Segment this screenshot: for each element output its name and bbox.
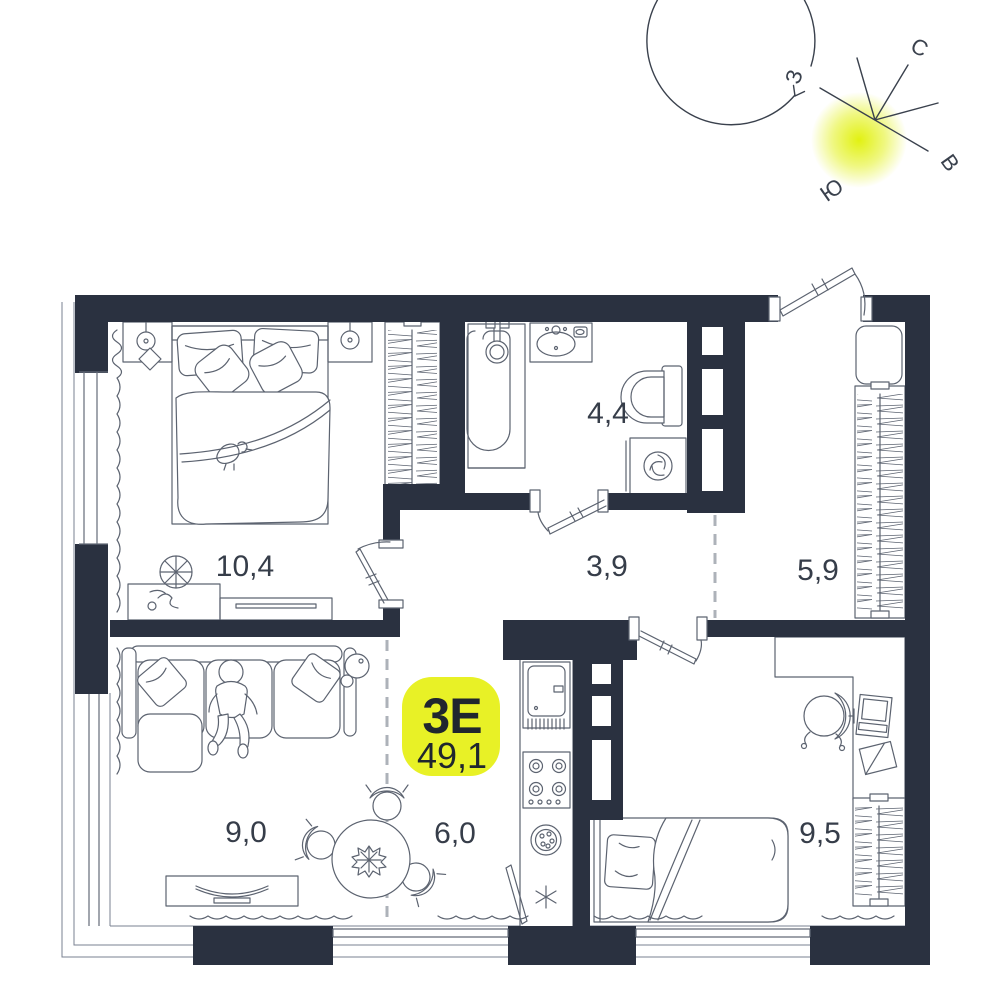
dining-set xyxy=(295,785,445,907)
plant xyxy=(160,556,192,588)
double-bed xyxy=(172,326,330,524)
compass-circle xyxy=(647,0,815,125)
entry-cabinet xyxy=(856,326,902,384)
nightstand-right xyxy=(328,322,372,362)
dresser xyxy=(128,584,220,620)
dining-table xyxy=(332,820,410,898)
compass-west: З xyxy=(780,66,808,86)
entrance-door xyxy=(769,268,872,321)
label-entry-hall: 5,9 xyxy=(797,554,839,587)
washing-machine xyxy=(626,438,686,494)
curtain-bottom-right xyxy=(822,916,894,919)
bedroom-second-door xyxy=(629,617,707,664)
wardrobe-entry xyxy=(855,382,905,618)
label-hallway: 3,9 xyxy=(586,550,628,583)
apartment-badge: 3Е 49,1 xyxy=(402,677,500,776)
sun-glow xyxy=(811,92,907,188)
compass-east: В xyxy=(936,150,965,176)
console-table xyxy=(220,598,332,620)
bathtub xyxy=(467,321,525,468)
toilet xyxy=(621,366,682,426)
badge-area: 49,1 xyxy=(417,735,487,776)
floor-plan-canvas: 10,4 4,4 3,9 5,9 9,0 6,0 9,5 3Е 49,1 С В… xyxy=(0,0,1000,1000)
curtain-left-bedroom xyxy=(113,330,122,612)
entry-hall-furniture xyxy=(855,326,905,618)
kitchen-furniture xyxy=(506,658,573,928)
wardrobe-bedroom-main xyxy=(385,318,440,503)
tv-stand xyxy=(166,876,298,906)
label-bedroom-main: 10,4 xyxy=(216,550,274,583)
label-kitchen: 6,0 xyxy=(434,817,476,850)
bedroom-main-furniture xyxy=(113,318,441,620)
curtain-bottom-living xyxy=(190,916,352,919)
bathroom-door xyxy=(530,490,608,534)
floor-plan-page: 10,4 4,4 3,9 5,9 9,0 6,0 9,5 3Е 49,1 С В… xyxy=(0,0,1000,1000)
nightstand-left xyxy=(123,322,172,370)
compass-rose: С В Ю З xyxy=(647,0,965,206)
bedroom-main-door xyxy=(356,540,403,608)
compass-north: С xyxy=(907,33,933,63)
bathroom-furniture xyxy=(467,321,686,494)
wardrobe-bedroom-second xyxy=(853,794,905,906)
single-bed xyxy=(594,818,788,922)
curtain-left-living xyxy=(117,648,120,774)
label-bathroom: 4,4 xyxy=(587,397,629,430)
office-chair xyxy=(802,693,855,751)
label-living-room: 9,0 xyxy=(225,816,267,849)
bedroom-second-furniture xyxy=(594,637,905,922)
bathroom-sink xyxy=(530,323,592,362)
label-bedroom-second: 9,5 xyxy=(799,817,841,850)
curtain-bottom-kitchen xyxy=(438,916,528,919)
